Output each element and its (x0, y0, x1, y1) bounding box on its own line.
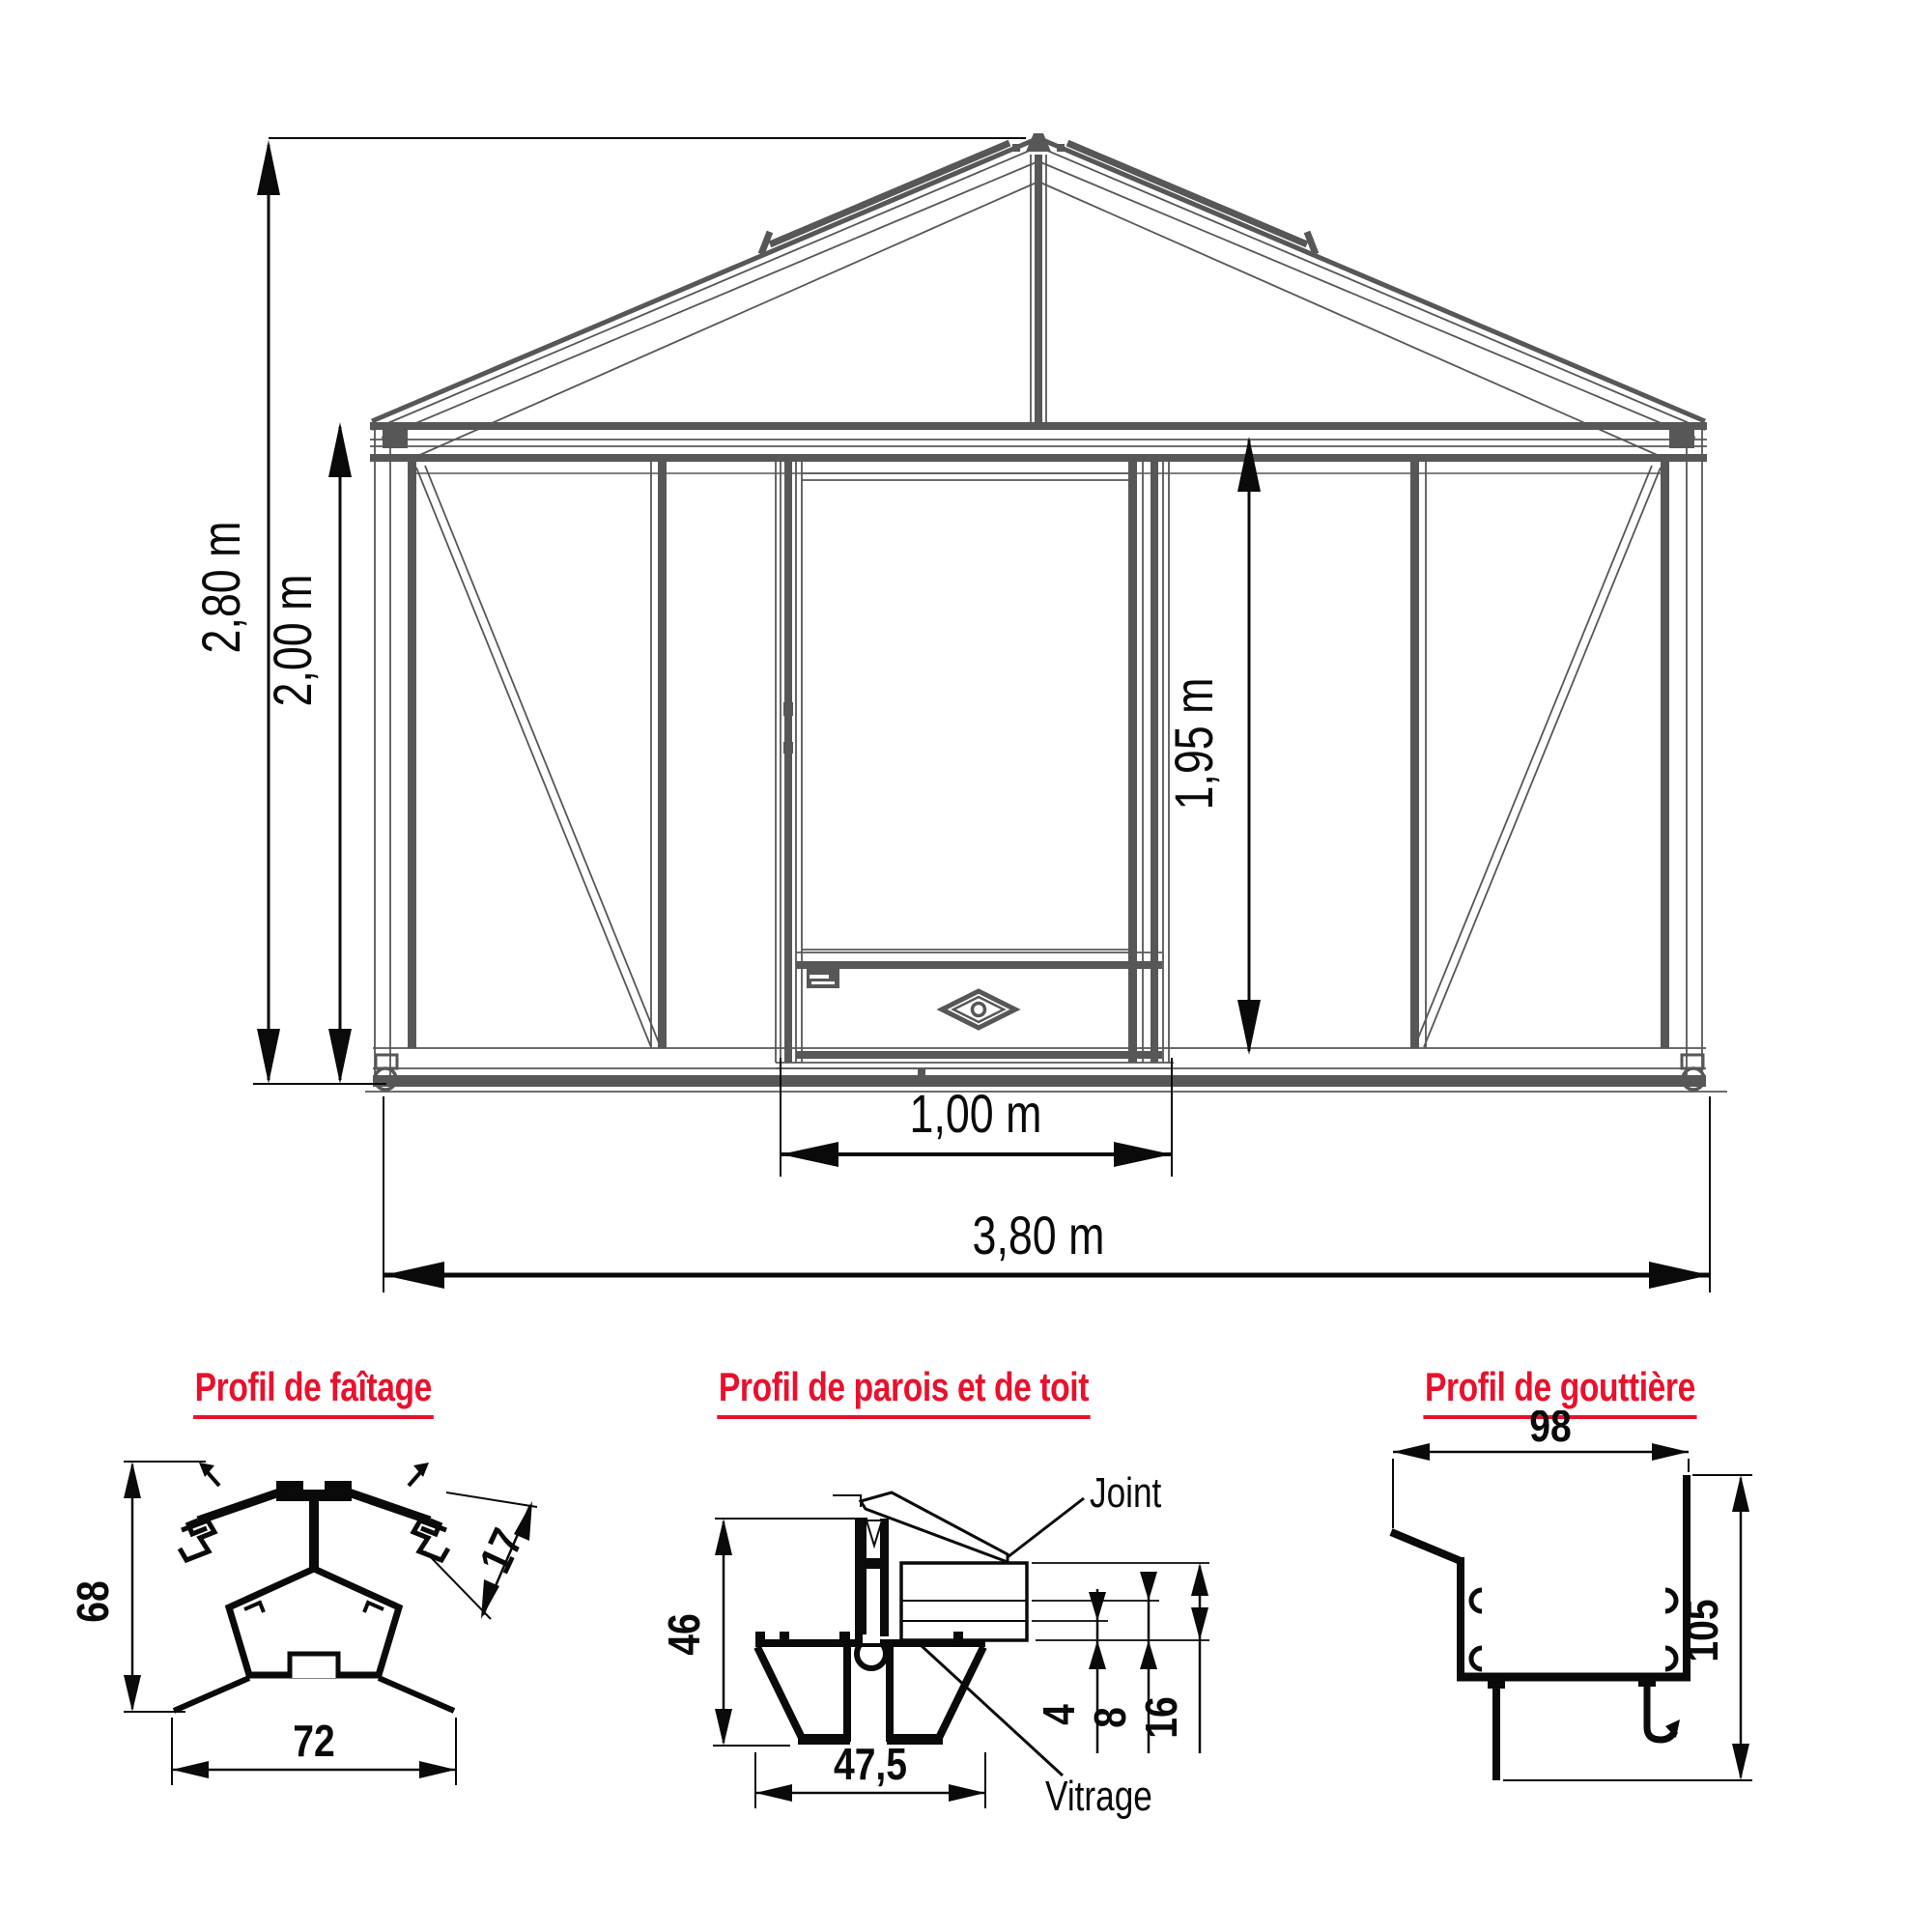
glazing-panel (901, 1563, 1027, 1640)
greenhouse-elevation-drawing: 2,80 m 2,00 m 1,95 m (0, 0, 1932, 1352)
glazing-dim-gap-label: 8 (1086, 1707, 1136, 1728)
wall-dim-width-label: 47,5 (834, 1740, 907, 1790)
wall-profile-bottom (755, 1632, 985, 1745)
dim-wall-height: 2,00 m (262, 422, 352, 1084)
sliding-door (776, 462, 1174, 1068)
ridge-profile-title-text: Profil de faîtage (193, 1364, 433, 1419)
diagonal-brace-left (416, 466, 660, 1047)
snap-arrow-left (199, 1463, 219, 1486)
snap-arrow-right (409, 1463, 429, 1486)
wall-roof-profile-drawing: 46 Joint Vitrage 4 (657, 1430, 1236, 1855)
ridge-dim-width-label: 72 (293, 1717, 334, 1767)
ridge-extrusion (174, 1463, 454, 1711)
wall-roof-profile-title-text: Profil de parois et de toit (717, 1364, 1090, 1419)
gutter-dim-width: 98 (1393, 1410, 1689, 1528)
dim-door-width-label: 1,00 m (910, 1083, 1042, 1144)
wall-dim-width: 47,5 (755, 1740, 985, 1808)
gutter-extrusion (1391, 1475, 1690, 1780)
roof-vent-rail-left (761, 143, 1009, 254)
glazing-dim-pane-label: 4 (1035, 1704, 1085, 1725)
glazing-dim-total-label: 16 (1137, 1696, 1187, 1738)
wall-dim-height-label: 46 (660, 1613, 710, 1655)
eave-gutter-band (370, 422, 1707, 462)
dim-door-height-label: 1,95 m (1163, 678, 1224, 810)
dim-total-height-label: 2,80 m (190, 522, 251, 654)
ridge-profile-drawing: 68 17 72 (58, 1439, 618, 1826)
gutter-profile-drawing: 98 105 (1333, 1410, 1777, 1845)
technical-drawing-page: 2,80 m 2,00 m 1,95 m (0, 0, 1932, 1932)
glazing-bar-section (855, 1519, 889, 1640)
diamond-logo (942, 991, 1015, 1028)
gutter-dim-height-label: 105 (1678, 1599, 1728, 1662)
glazing-label: Vitrage (1045, 1773, 1152, 1820)
dim-door-height: 1,95 m (1163, 437, 1261, 1055)
door-lock-plate (807, 969, 839, 988)
gutter-dim-height: 105 (1503, 1475, 1752, 1780)
roof-structure (372, 133, 1705, 457)
dim-wall-height-label: 2,00 m (262, 575, 323, 707)
dim-total-width: 3,80 m (384, 1096, 1710, 1293)
roof-vent-rail-right (1067, 143, 1316, 254)
wall-roof-profile-title: Profil de parois et de toit (662, 1364, 1145, 1419)
dim-total-width-label: 3,80 m (973, 1205, 1105, 1265)
gutter-dim-width-label: 98 (1529, 1410, 1571, 1452)
wall-structure (375, 430, 1702, 1084)
ridge-dim-height-label: 68 (69, 1580, 119, 1622)
ridge-cap (1012, 133, 1065, 152)
ridge-dim-width: 72 (172, 1717, 456, 1785)
ridge-dim-height: 68 (69, 1462, 206, 1712)
joint-callout: Joint (1008, 1469, 1161, 1557)
diagonal-brace-right (1415, 466, 1661, 1047)
ridge-profile-title: Profil de faîtage (120, 1364, 506, 1419)
dimension-annotations: 2,80 m 2,00 m 1,95 m (190, 138, 1710, 1293)
joint-label: Joint (1090, 1469, 1161, 1517)
